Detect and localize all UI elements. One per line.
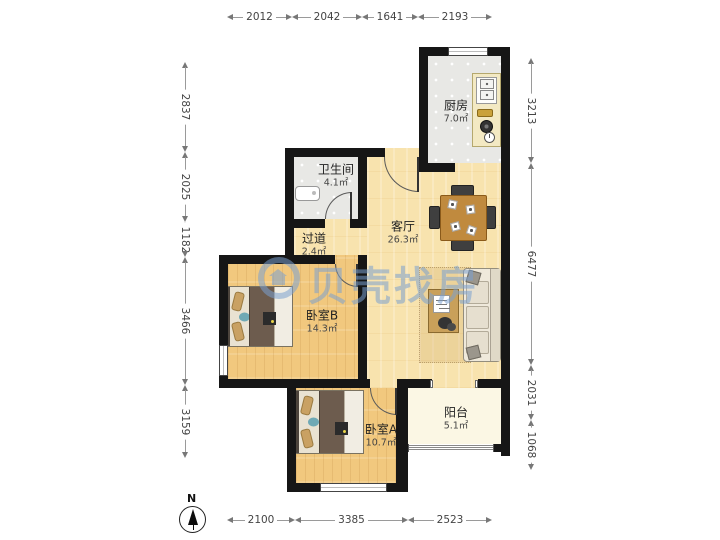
wall [419,47,428,172]
dining-chair [451,240,474,251]
dining-chair [429,206,440,229]
bedroom-b-window [219,345,228,376]
wall [287,388,296,492]
floor-plan: 贝壳找房 厨房 7.0㎡ 卫生间 4.1㎡ 过道 2.4㎡ 客厅 26.3㎡ 卧… [0,0,720,540]
dim-right-4: 1068 [524,420,538,470]
dining-table [440,195,487,241]
kettle-icon [484,132,495,143]
north-label: N [187,492,196,505]
room-label-living: 客厅 26.3㎡ [388,220,419,247]
balcony-door-frame [475,380,478,388]
wall [396,388,408,492]
wall [350,219,367,228]
bedroom-a-door-leaf [395,388,397,415]
wall [358,157,367,228]
dim-top-2: 2042 [292,10,362,24]
kitchen-counter [472,73,501,147]
wall [478,379,510,388]
north-arrow-icon [179,506,206,533]
cutting-board-icon [477,109,493,117]
room-label-bedroom-b: 卧室B 14.3㎡ [306,309,338,336]
plate-icon [465,204,475,214]
dim-left-1: 2837 [178,62,192,152]
bed-bedroom-a [293,390,364,454]
wall [285,148,294,264]
balcony-door-frame [430,380,433,388]
wall [501,47,510,456]
dim-top-3: 1641 [362,10,418,24]
dim-top-1: 2012 [227,10,292,24]
sink-icon [476,77,497,104]
room-label-balcony: 阳台 5.1㎡ [444,406,469,433]
room-label-bathroom: 卫生间 4.1㎡ [318,163,354,190]
watermark-text: 贝壳找房 [308,254,480,312]
room-label-kitchen: 厨房 7.0㎡ [444,99,469,126]
bathroom-door-leaf [350,192,352,219]
washbasin-icon [295,186,320,201]
wall [397,379,432,388]
wall [387,483,408,492]
stove-burner-icon [480,120,493,133]
bedroom-a-window [320,483,387,492]
dim-top-4: 2193 [418,10,492,24]
beike-logo-icon [258,257,300,299]
dim-right-2: 6477 [524,163,538,365]
dim-right-3: 2031 [524,365,538,420]
kitchen-window [448,47,488,56]
dim-left-4: 3466 [178,257,192,385]
wall [219,379,370,388]
room-label-bedroom-a: 卧室A 10.7㎡ [365,423,397,450]
dim-right-1: 3213 [524,58,538,163]
dim-bottom-1: 2100 [227,513,295,527]
balcony-railing-window [408,444,494,452]
plate-icon [447,199,458,210]
room-label-hallway: 过道 2.4㎡ [302,232,327,259]
dim-left-3: 1182 [178,222,192,257]
dim-bottom-2: 3385 [295,513,408,527]
dim-left-5: 3159 [178,385,192,458]
entry-door-leaf [417,157,419,192]
wall [285,219,325,228]
dim-left-2: 2025 [178,152,192,222]
wall [419,163,455,172]
wall [285,148,385,157]
wall [287,483,320,492]
dim-bottom-3: 2523 [408,513,492,527]
